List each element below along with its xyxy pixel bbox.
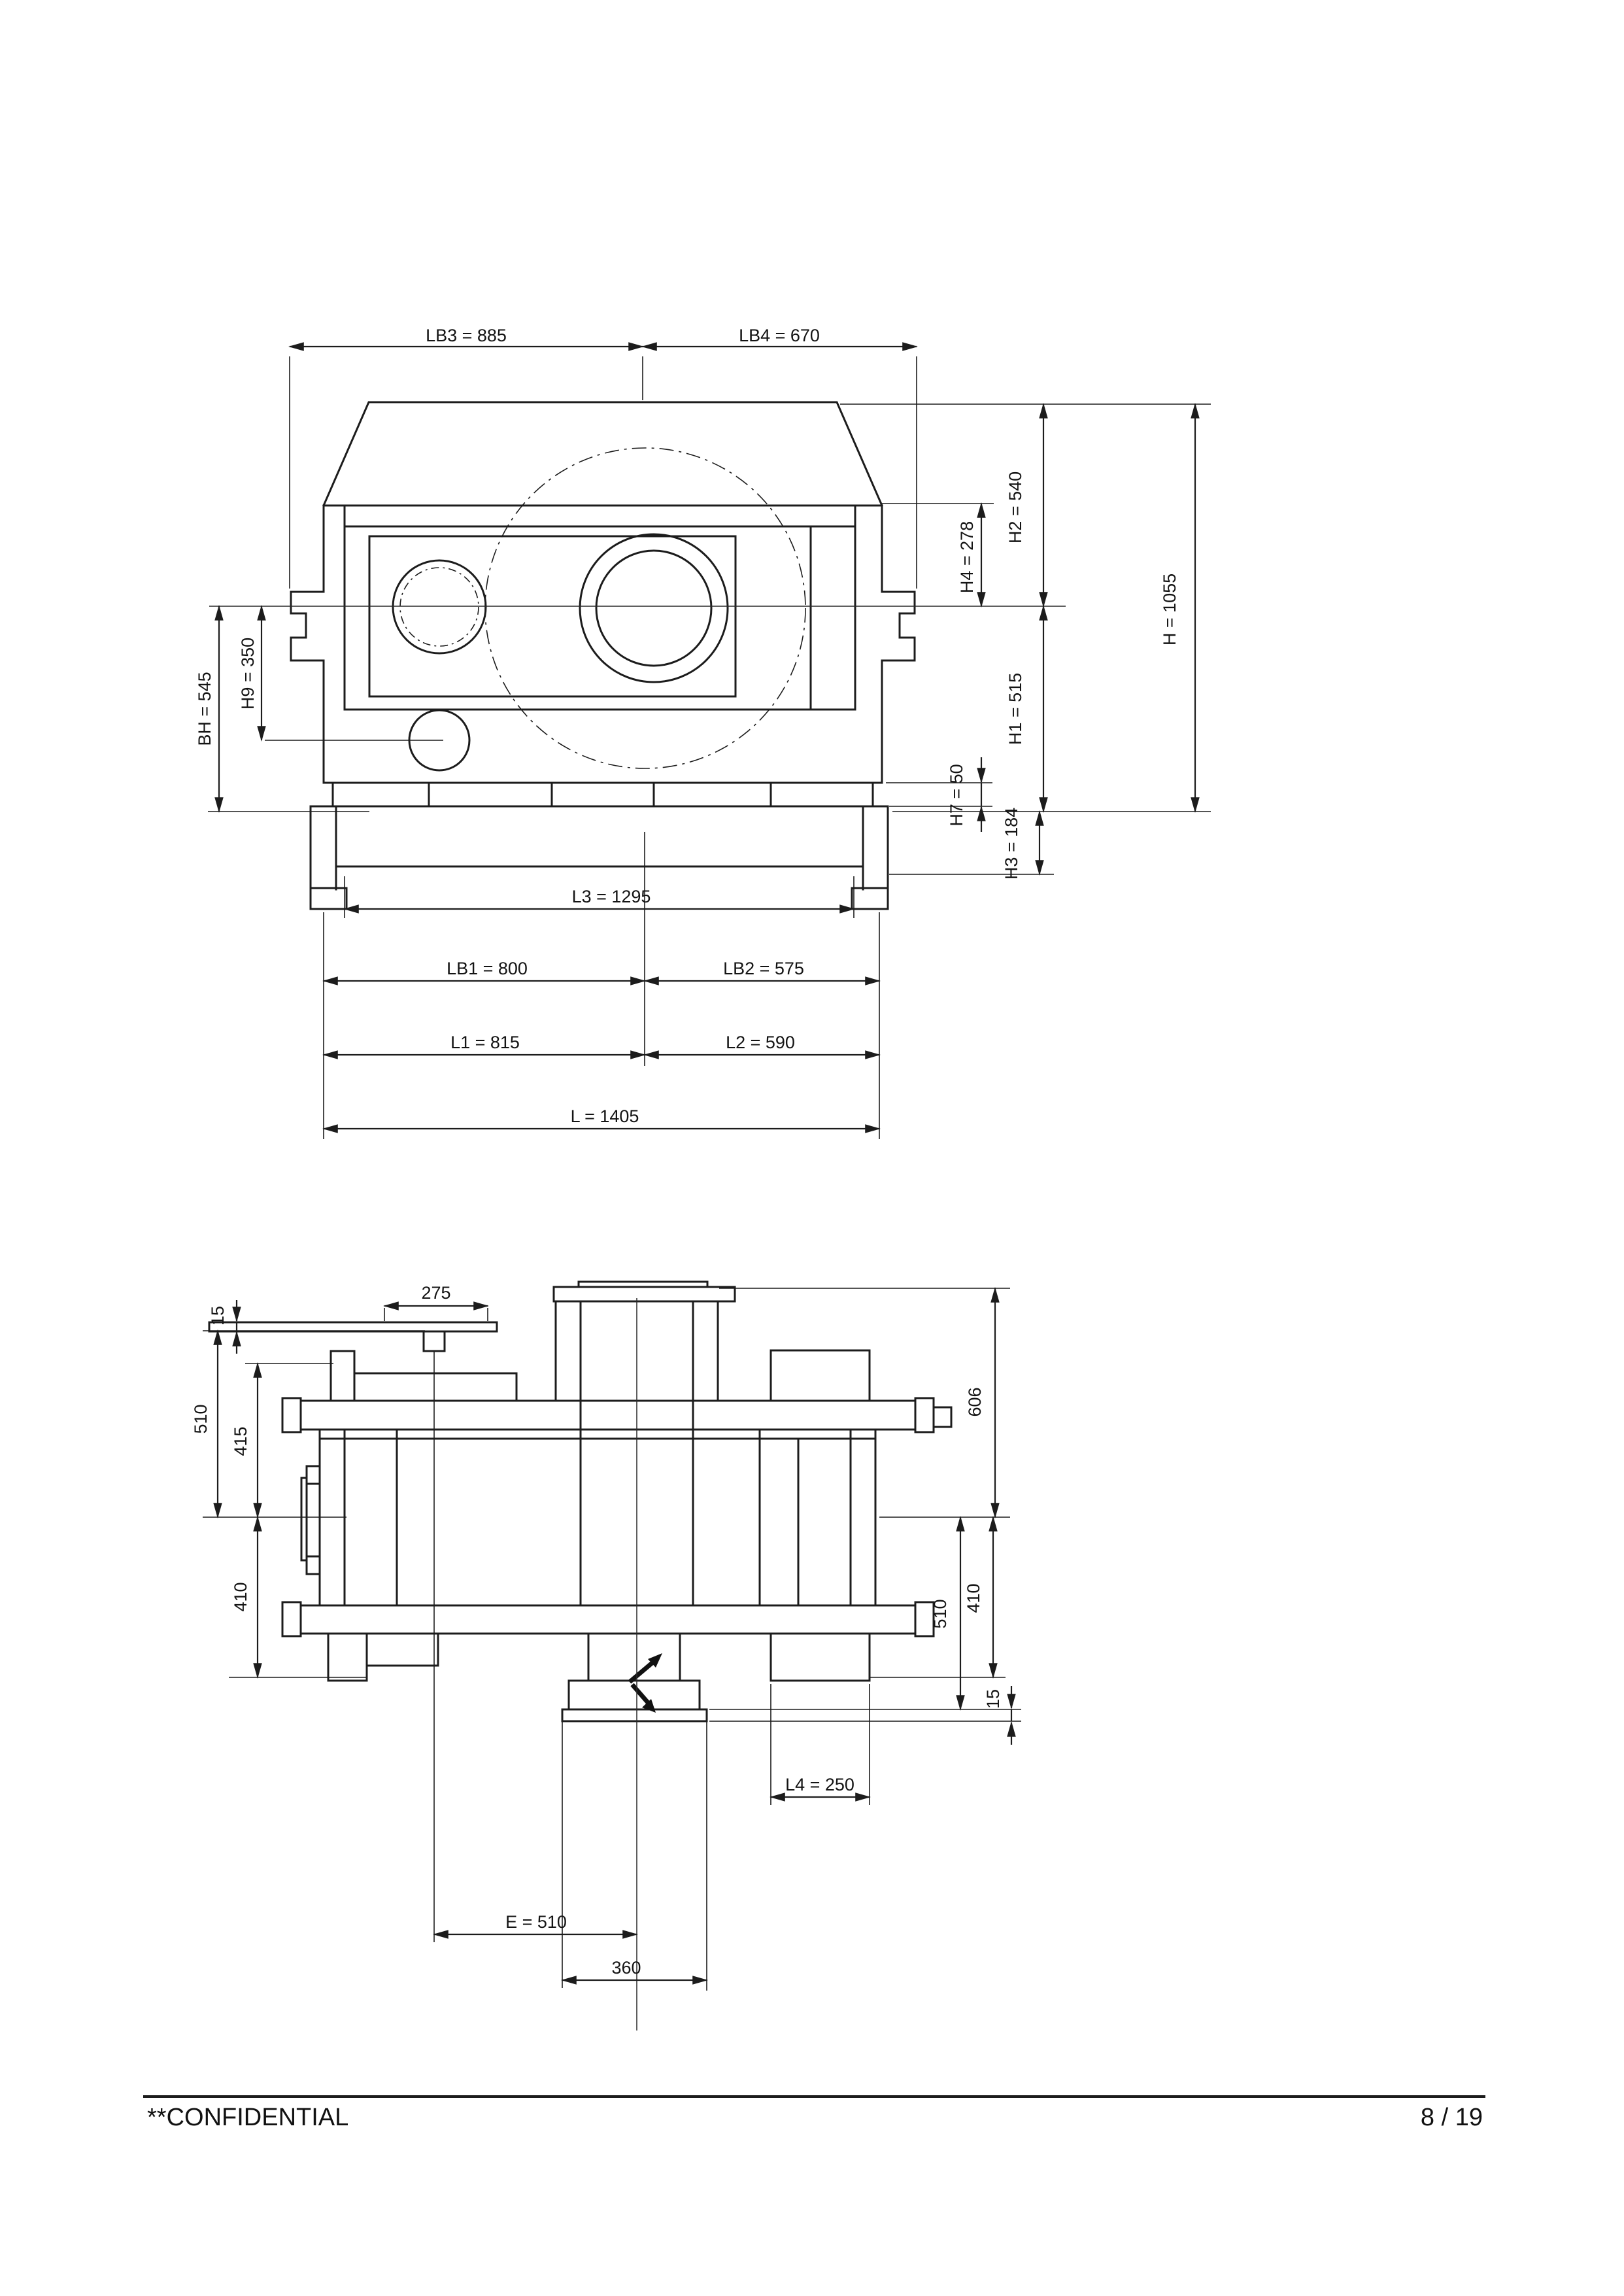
label-l: L = 1405 xyxy=(571,1106,639,1126)
right-lifting-lug xyxy=(882,592,915,660)
front-view-dimension-labels: LB3 = 885 LB4 = 670 BH = 545 H9 = 350 H4… xyxy=(195,326,1179,1126)
bottom-left-bracket xyxy=(328,1634,367,1681)
front-view-reference-lines xyxy=(208,356,1211,1139)
flywheel-phantom-circle xyxy=(485,448,805,768)
label-l3: L3 = 1295 xyxy=(572,887,651,906)
label-l1: L1 = 815 xyxy=(450,1033,520,1052)
output-shaft-circle-inner xyxy=(596,551,711,666)
foot-slot-middle xyxy=(552,783,654,806)
bottom-left-cover xyxy=(367,1634,438,1666)
label-360: 360 xyxy=(611,1958,641,1978)
left-lifting-lug xyxy=(291,592,324,660)
bottom-strip-cap-left xyxy=(282,1602,301,1636)
label-15-right: 15 xyxy=(983,1689,1003,1709)
label-h9: H9 = 350 xyxy=(238,638,258,710)
bottom-outlet-neck xyxy=(588,1634,680,1681)
label-lb2: LB2 = 575 xyxy=(723,959,804,978)
plan-view-reference-lines xyxy=(203,1288,1021,2030)
label-415-left: 415 xyxy=(231,1426,250,1456)
left-side-pad-lip xyxy=(301,1478,307,1560)
label-lb1: LB1 = 800 xyxy=(447,959,528,978)
left-tbar xyxy=(209,1322,497,1331)
technical-drawing-sheet: LB3 = 885 LB4 = 670 BH = 545 H9 = 350 H4… xyxy=(0,0,1624,2296)
output-shaft-circle-outer xyxy=(580,534,728,682)
left-side-pad xyxy=(307,1466,320,1574)
label-l4: L4 = 250 xyxy=(785,1775,854,1794)
label-bh: BH = 545 xyxy=(195,672,214,745)
left-bracket xyxy=(331,1351,354,1401)
bottom-right-box xyxy=(771,1634,870,1681)
label-510-left: 510 xyxy=(191,1404,211,1433)
label-h2: H2 = 540 xyxy=(1006,471,1025,543)
label-510-right: 510 xyxy=(930,1599,950,1628)
page-number: 8 / 19 xyxy=(1421,2104,1483,2131)
label-lb4: LB4 = 670 xyxy=(739,326,820,345)
foot-slot-right xyxy=(771,783,873,806)
input-shaft-circle-inner xyxy=(400,568,479,646)
top-strip-cap-right xyxy=(915,1398,934,1432)
input-shaft-circle-outer xyxy=(393,560,486,653)
hood-outline xyxy=(324,402,882,505)
label-h4: H4 = 278 xyxy=(957,521,977,593)
top-strip-mini-tab xyxy=(934,1407,951,1427)
panel-inner-rect xyxy=(369,536,736,696)
label-h3: H3 = 184 xyxy=(1002,808,1021,880)
top-right-box xyxy=(771,1350,870,1401)
label-h1: H1 = 515 xyxy=(1006,673,1025,745)
left-bracket-plate xyxy=(354,1373,516,1401)
label-410-left: 410 xyxy=(231,1582,250,1611)
label-606-right: 606 xyxy=(965,1387,985,1416)
bottom-flange-strip xyxy=(301,1605,915,1634)
plan-view-outline xyxy=(209,1282,951,1721)
label-lb3: LB3 = 885 xyxy=(426,326,507,345)
front-view-outline xyxy=(291,402,915,909)
direction-arrow-lower-shaft xyxy=(632,1685,650,1705)
label-15-left: 15 xyxy=(208,1306,228,1326)
top-shaft-flange xyxy=(554,1287,735,1301)
base-foot-right xyxy=(852,888,888,909)
bottom-outlet-plate xyxy=(562,1709,707,1721)
front-view: LB3 = 885 LB4 = 670 BH = 545 H9 = 350 H4… xyxy=(195,326,1211,1139)
left-tbar-stem xyxy=(424,1331,445,1351)
plan-view-dimension-labels: 275 15 510 415 410 606 410 510 15 L4 = 2… xyxy=(191,1283,1003,1978)
direction-arrow-upper-shaft xyxy=(630,1661,654,1682)
foot-slot-left xyxy=(333,783,429,806)
label-h: H = 1055 xyxy=(1160,574,1179,645)
confidential-label: **CONFIDENTIAL xyxy=(147,2104,348,2131)
plan-view: 275 15 510 415 410 606 410 510 15 L4 = 2… xyxy=(191,1282,1021,2030)
label-l2: L2 = 590 xyxy=(726,1033,795,1052)
front-view-dimension-lines xyxy=(219,347,1195,1129)
base-foot-left xyxy=(311,888,347,909)
page-footer: **CONFIDENTIAL 8 / 19 xyxy=(143,2097,1485,2131)
label-h7: H7 = 50 xyxy=(947,764,966,826)
top-strip-cap-left xyxy=(282,1398,301,1432)
label-275: 275 xyxy=(421,1283,450,1303)
top-flange-strip xyxy=(301,1401,915,1430)
label-e: E = 510 xyxy=(505,1912,567,1932)
housing-body xyxy=(320,1430,875,1605)
label-410-right: 410 xyxy=(964,1583,983,1613)
